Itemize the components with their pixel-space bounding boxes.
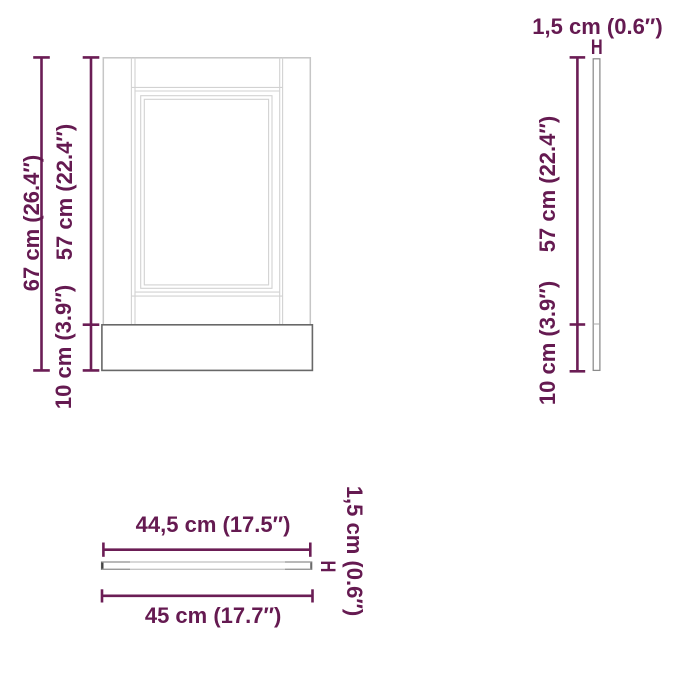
svg-text:1,5 cm (0.6″): 1,5 cm (0.6″) <box>342 486 367 616</box>
svg-text:10 cm (3.9″): 10 cm (3.9″) <box>535 281 560 405</box>
svg-text:67 cm (26.4″): 67 cm (26.4″) <box>19 155 44 292</box>
svg-text:44,5 cm (17.5″): 44,5 cm (17.5″) <box>136 512 291 537</box>
svg-text:H: H <box>316 560 339 572</box>
svg-text:57 cm (22.4″): 57 cm (22.4″) <box>535 116 560 253</box>
svg-text:H: H <box>591 35 603 58</box>
svg-text:57 cm (22.4″): 57 cm (22.4″) <box>52 124 77 261</box>
svg-text:10 cm (3.9″): 10 cm (3.9″) <box>51 285 76 409</box>
svg-text:45 cm (17.7″): 45 cm (17.7″) <box>145 603 282 628</box>
